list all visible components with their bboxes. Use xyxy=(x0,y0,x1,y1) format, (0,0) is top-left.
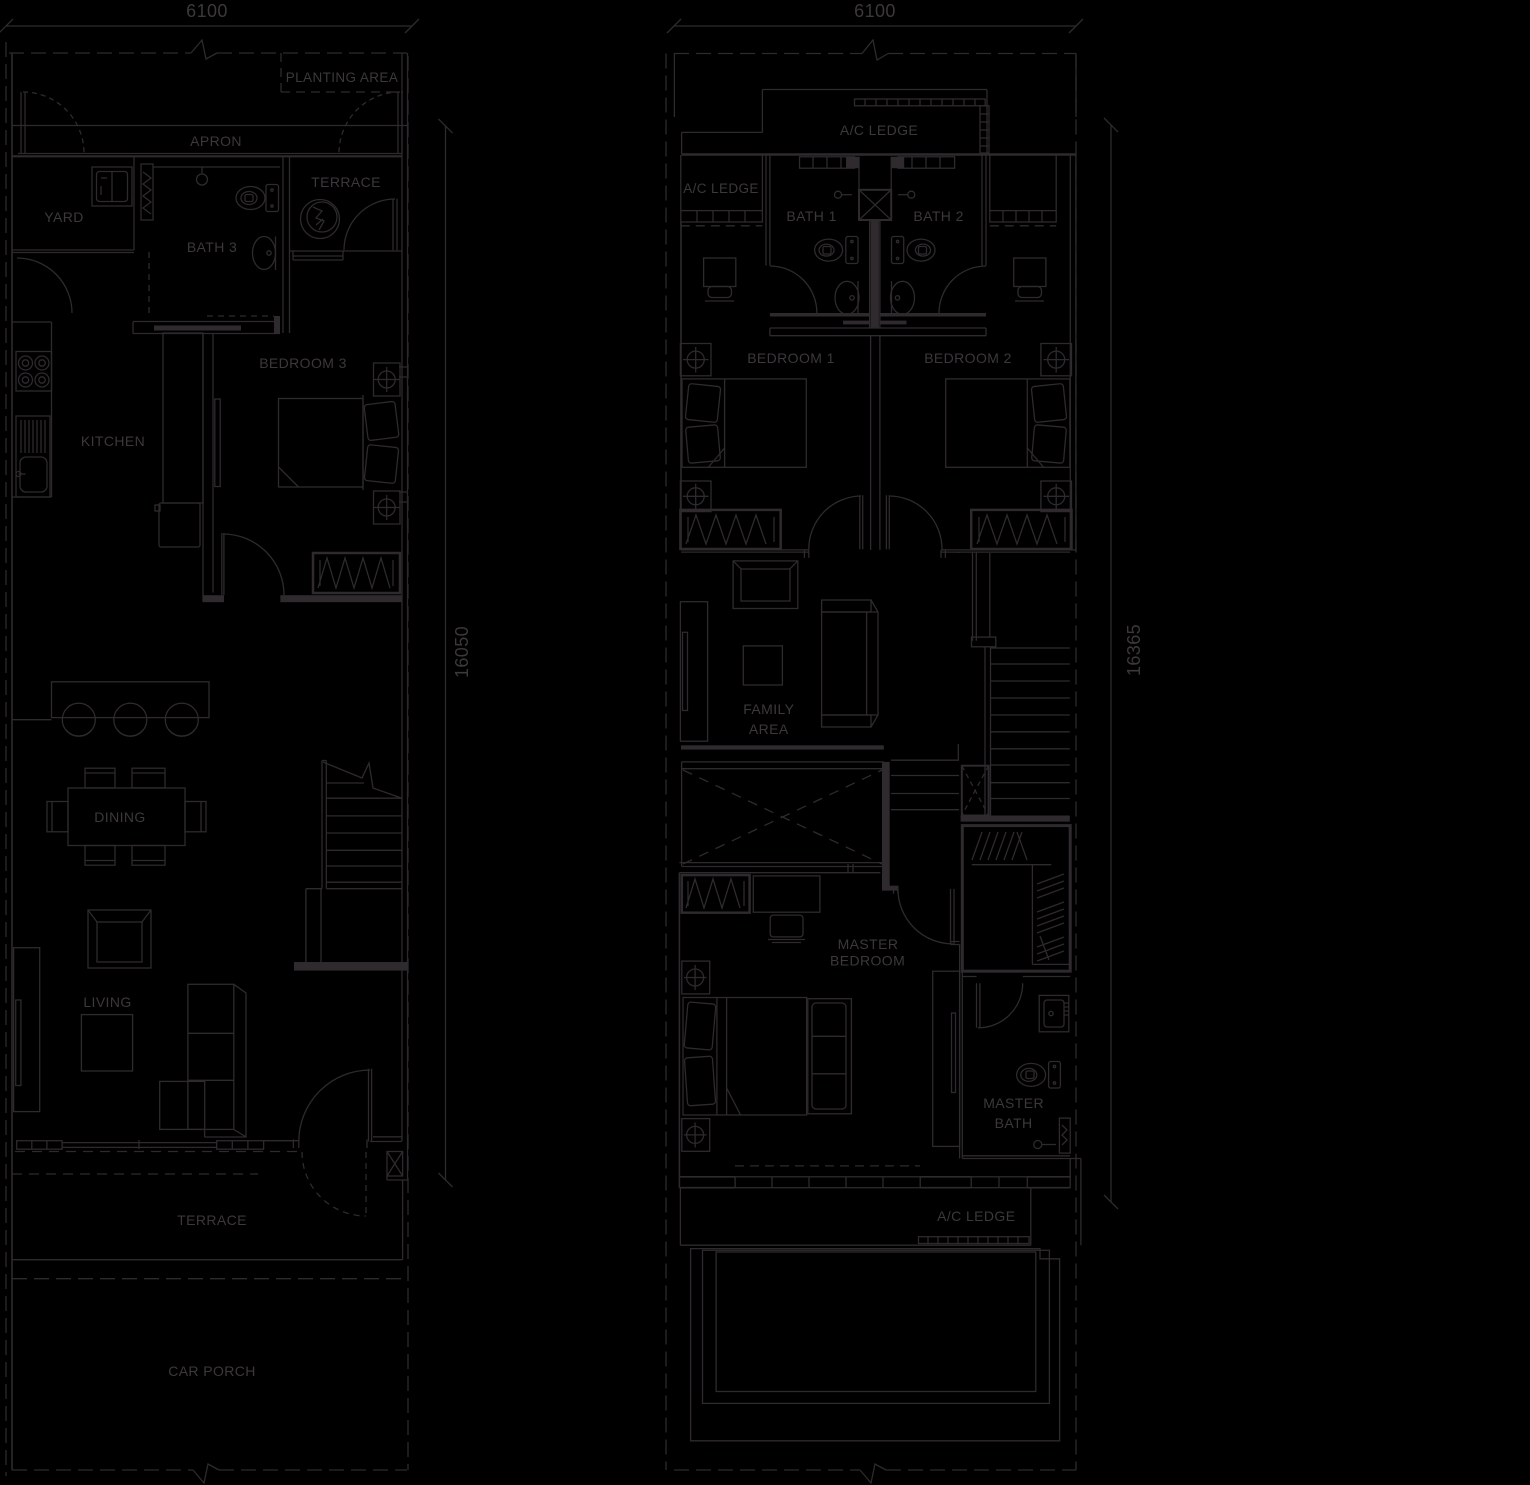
svg-text:YARD: YARD xyxy=(44,209,83,225)
svg-text:16365: 16365 xyxy=(1124,624,1144,676)
svg-text:A/C LEDGE: A/C LEDGE xyxy=(840,122,918,138)
svg-text:BATH 3: BATH 3 xyxy=(187,239,237,255)
svg-text:BEDROOM: BEDROOM xyxy=(830,953,905,969)
svg-text:A/C LEDGE: A/C LEDGE xyxy=(937,1208,1015,1224)
svg-text:6100: 6100 xyxy=(186,1,228,21)
svg-text:KITCHEN: KITCHEN xyxy=(81,433,145,449)
svg-text:BEDROOM 3: BEDROOM 3 xyxy=(259,355,347,371)
svg-text:A/C LEDGE: A/C LEDGE xyxy=(683,181,759,196)
svg-text:APRON: APRON xyxy=(190,133,242,149)
svg-text:BEDROOM 1: BEDROOM 1 xyxy=(747,350,835,366)
svg-text:6100: 6100 xyxy=(854,1,896,21)
svg-text:AREA: AREA xyxy=(749,721,789,737)
svg-text:DINING: DINING xyxy=(94,809,145,825)
svg-text:16050: 16050 xyxy=(452,626,472,678)
svg-text:BEDROOM 2: BEDROOM 2 xyxy=(924,350,1012,366)
svg-text:BATH: BATH xyxy=(995,1115,1033,1131)
svg-text:MASTER: MASTER xyxy=(983,1095,1044,1111)
svg-text:TERRACE: TERRACE xyxy=(177,1212,247,1228)
svg-text:CAR PORCH: CAR PORCH xyxy=(168,1363,256,1379)
svg-text:BATH 2: BATH 2 xyxy=(913,208,963,224)
svg-text:TERRACE: TERRACE xyxy=(311,174,381,190)
svg-text:LIVING: LIVING xyxy=(83,994,131,1010)
svg-text:PLANTING AREA: PLANTING AREA xyxy=(286,70,398,85)
svg-text:FAMILY: FAMILY xyxy=(743,701,794,717)
svg-text:BATH 1: BATH 1 xyxy=(786,208,836,224)
svg-text:MASTER: MASTER xyxy=(838,936,899,952)
